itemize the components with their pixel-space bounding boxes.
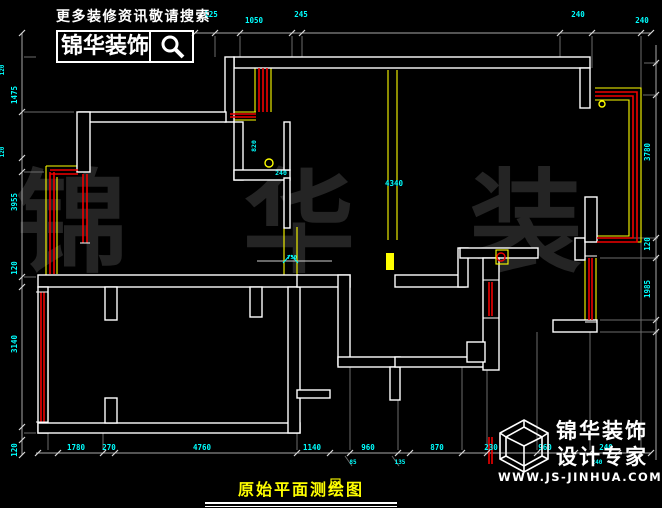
wall — [338, 275, 350, 365]
drawing-title: 原始平面测绘图 — [205, 476, 397, 500]
search-icon — [157, 34, 187, 60]
wall — [585, 197, 597, 242]
wall — [338, 357, 400, 367]
wall — [297, 390, 330, 398]
title-block: 原始平面测绘图 — [205, 476, 397, 507]
title-underline-1 — [205, 502, 397, 504]
logo-text: 锦华装饰 — [58, 32, 149, 61]
search-box — [149, 32, 192, 61]
wall — [575, 238, 585, 260]
dim-label: 3780 — [643, 142, 652, 161]
dim-label: 245 — [294, 10, 308, 19]
dim-label: 240 — [571, 10, 585, 19]
dim-label: 1985 — [643, 280, 652, 298]
door-marker — [386, 253, 394, 270]
wall — [38, 275, 298, 287]
dim-label: 240 — [275, 169, 287, 177]
wall — [79, 112, 226, 122]
footer-branding: 锦华装饰 设计专家 — [498, 418, 648, 474]
dim-label: 3955 — [10, 193, 19, 211]
dim-label: 135 — [395, 459, 406, 466]
wall — [105, 287, 117, 320]
window-frame-polyline — [595, 100, 629, 236]
dim-label: 120 — [10, 443, 19, 457]
dim-label: 230 — [484, 443, 498, 452]
dim-label: 3140 — [10, 334, 19, 353]
wall — [580, 68, 590, 108]
cube-logo-icon — [498, 418, 550, 474]
dim-label: 1475 — [10, 86, 19, 104]
wall — [395, 275, 465, 287]
slogan-text: 更多装修资讯敬请搜索 — [56, 6, 211, 26]
wall — [284, 178, 290, 228]
dim-label: 120 — [10, 261, 19, 275]
symbol-circle — [265, 159, 273, 167]
dim-label: 270 — [102, 443, 116, 452]
dim-label: 120 — [643, 237, 652, 251]
cad-canvas: 锦 华 装 饰 12510502452402401780270476011409… — [0, 0, 662, 508]
footer-line1: 锦华装饰 — [556, 418, 648, 444]
dim-label: 85 — [349, 459, 357, 466]
dim-label: 120 — [0, 64, 6, 75]
dim-label: 1780 — [67, 443, 86, 452]
footer-line2: 设计专家 — [556, 444, 648, 470]
dim-label: 120 — [0, 146, 6, 157]
dim-label: 4340 — [385, 179, 404, 188]
wall — [234, 57, 590, 68]
dim-label: 820 — [250, 140, 258, 152]
dim-label: 4760 — [193, 443, 212, 452]
wall — [105, 398, 117, 423]
dim-label: 1050 — [245, 16, 264, 25]
footer-logo-text: 锦华装饰 设计专家 — [556, 418, 648, 474]
wall — [390, 367, 400, 400]
dim-label: 960 — [361, 443, 375, 452]
header-branding: 更多装修资讯敬请搜索 锦华装饰 — [56, 6, 211, 63]
dim-label: 240 — [635, 16, 649, 25]
wall — [284, 122, 290, 170]
bay-window-polyline — [595, 92, 637, 242]
wall — [288, 287, 300, 433]
dim-label: 1140 — [303, 443, 322, 452]
wall — [467, 342, 485, 362]
title-underline-2 — [205, 506, 397, 507]
dim-label: 750 — [287, 255, 297, 261]
window-frame-polyline — [595, 88, 641, 242]
website-url: WWW.JS-JINHUA.COM — [498, 470, 662, 484]
logo-box: 锦华装饰 — [56, 30, 194, 63]
dim-label: 870 — [430, 443, 444, 452]
wall — [38, 423, 300, 433]
bay-window-polyline — [595, 96, 633, 238]
symbol-circle — [599, 101, 605, 107]
wall — [38, 287, 48, 433]
wall — [250, 287, 262, 317]
wall — [77, 112, 90, 172]
